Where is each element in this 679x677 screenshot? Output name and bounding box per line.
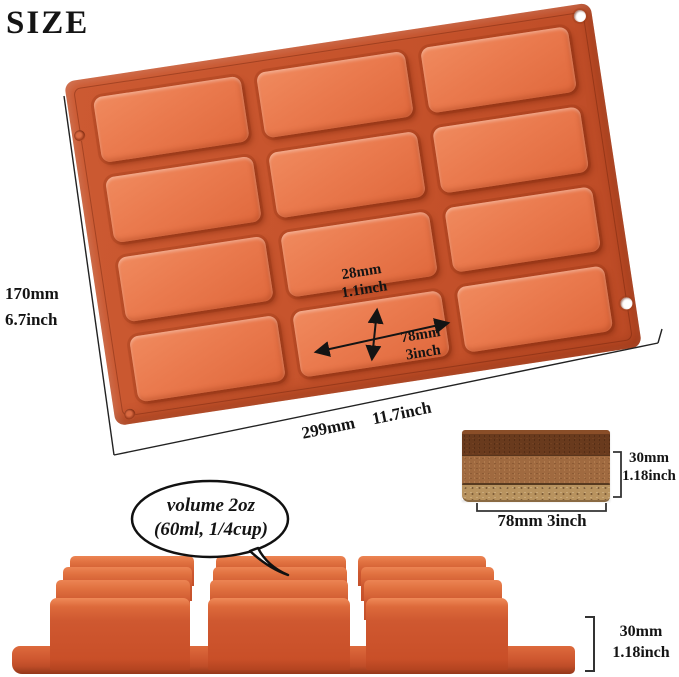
dim-overall-width-inch: 6.7inch [5, 307, 59, 333]
dim-overall-length-label: 299mm 11.7inch [300, 398, 433, 444]
volume-bubble-text: volume 2oz (60ml, 1/4cup) [133, 494, 289, 542]
dim-bar-length-label: 78mm 3inch [477, 511, 607, 531]
dim-bar-height-mm: 30mm [618, 450, 679, 468]
dim-overall-width-label: 170mm 6.7inch [5, 281, 59, 332]
dim-cavity-depth-inch: 1.18inch [606, 643, 676, 664]
cavity-block-column [50, 552, 200, 672]
mold-top-view [64, 2, 642, 426]
page-title: SIZE [6, 4, 89, 43]
dim-bar-length-mm: 78mm [497, 511, 542, 530]
dim-overall-length-inch: 11.7inch [370, 398, 433, 430]
cavity-block-column [364, 552, 514, 672]
brownie-mousse-layer [462, 455, 610, 484]
dim-overall-width-mm: 170mm [5, 281, 59, 307]
mold-cavity [117, 235, 274, 322]
mold-cavity [444, 186, 601, 273]
volume-line1: volume 2oz [133, 494, 289, 518]
mold-corner-rivet [124, 408, 137, 421]
cavity-block [366, 598, 508, 670]
dim-bar-height-label: 30mm 1.18inch [618, 450, 679, 485]
mold-cavity [432, 106, 589, 193]
cavity-block [208, 598, 350, 670]
mold-hang-hole [620, 297, 634, 311]
product-size-diagram: SIZE 170mm 6.7inch 28mm 1.1inch 78mm 3in… [0, 0, 679, 677]
mold-cavity [268, 131, 425, 218]
volume-line2: (60ml, 1/4cup) [133, 518, 289, 542]
mold-bottom-view [12, 552, 575, 677]
brownie-bar-photo [462, 430, 610, 500]
dim-overall-length-mm: 299mm [300, 413, 357, 443]
dim-cavity-depth-label: 30mm 1.18inch [606, 622, 676, 664]
brownie-crust-layer [462, 483, 610, 502]
dim-cavity-depth-mm: 30mm [606, 622, 676, 643]
bracket-cavity-depth [585, 617, 594, 671]
mold-cavity [105, 155, 262, 242]
cavity-block-column [208, 552, 358, 672]
dim-bar-height-inch: 1.18inch [618, 468, 679, 486]
cavity-block [50, 598, 190, 670]
bracket-bar-length [477, 503, 606, 511]
dim-bar-length-inch: 3inch [547, 511, 587, 530]
